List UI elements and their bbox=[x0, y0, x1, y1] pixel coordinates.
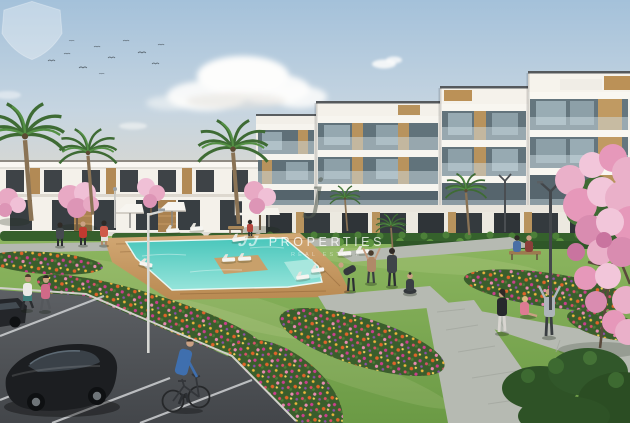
architectural-render: j JJ PROPERTIES REAL ESTATE bbox=[0, 0, 630, 423]
render-scene bbox=[0, 0, 630, 423]
townhouses-left bbox=[0, 160, 258, 240]
